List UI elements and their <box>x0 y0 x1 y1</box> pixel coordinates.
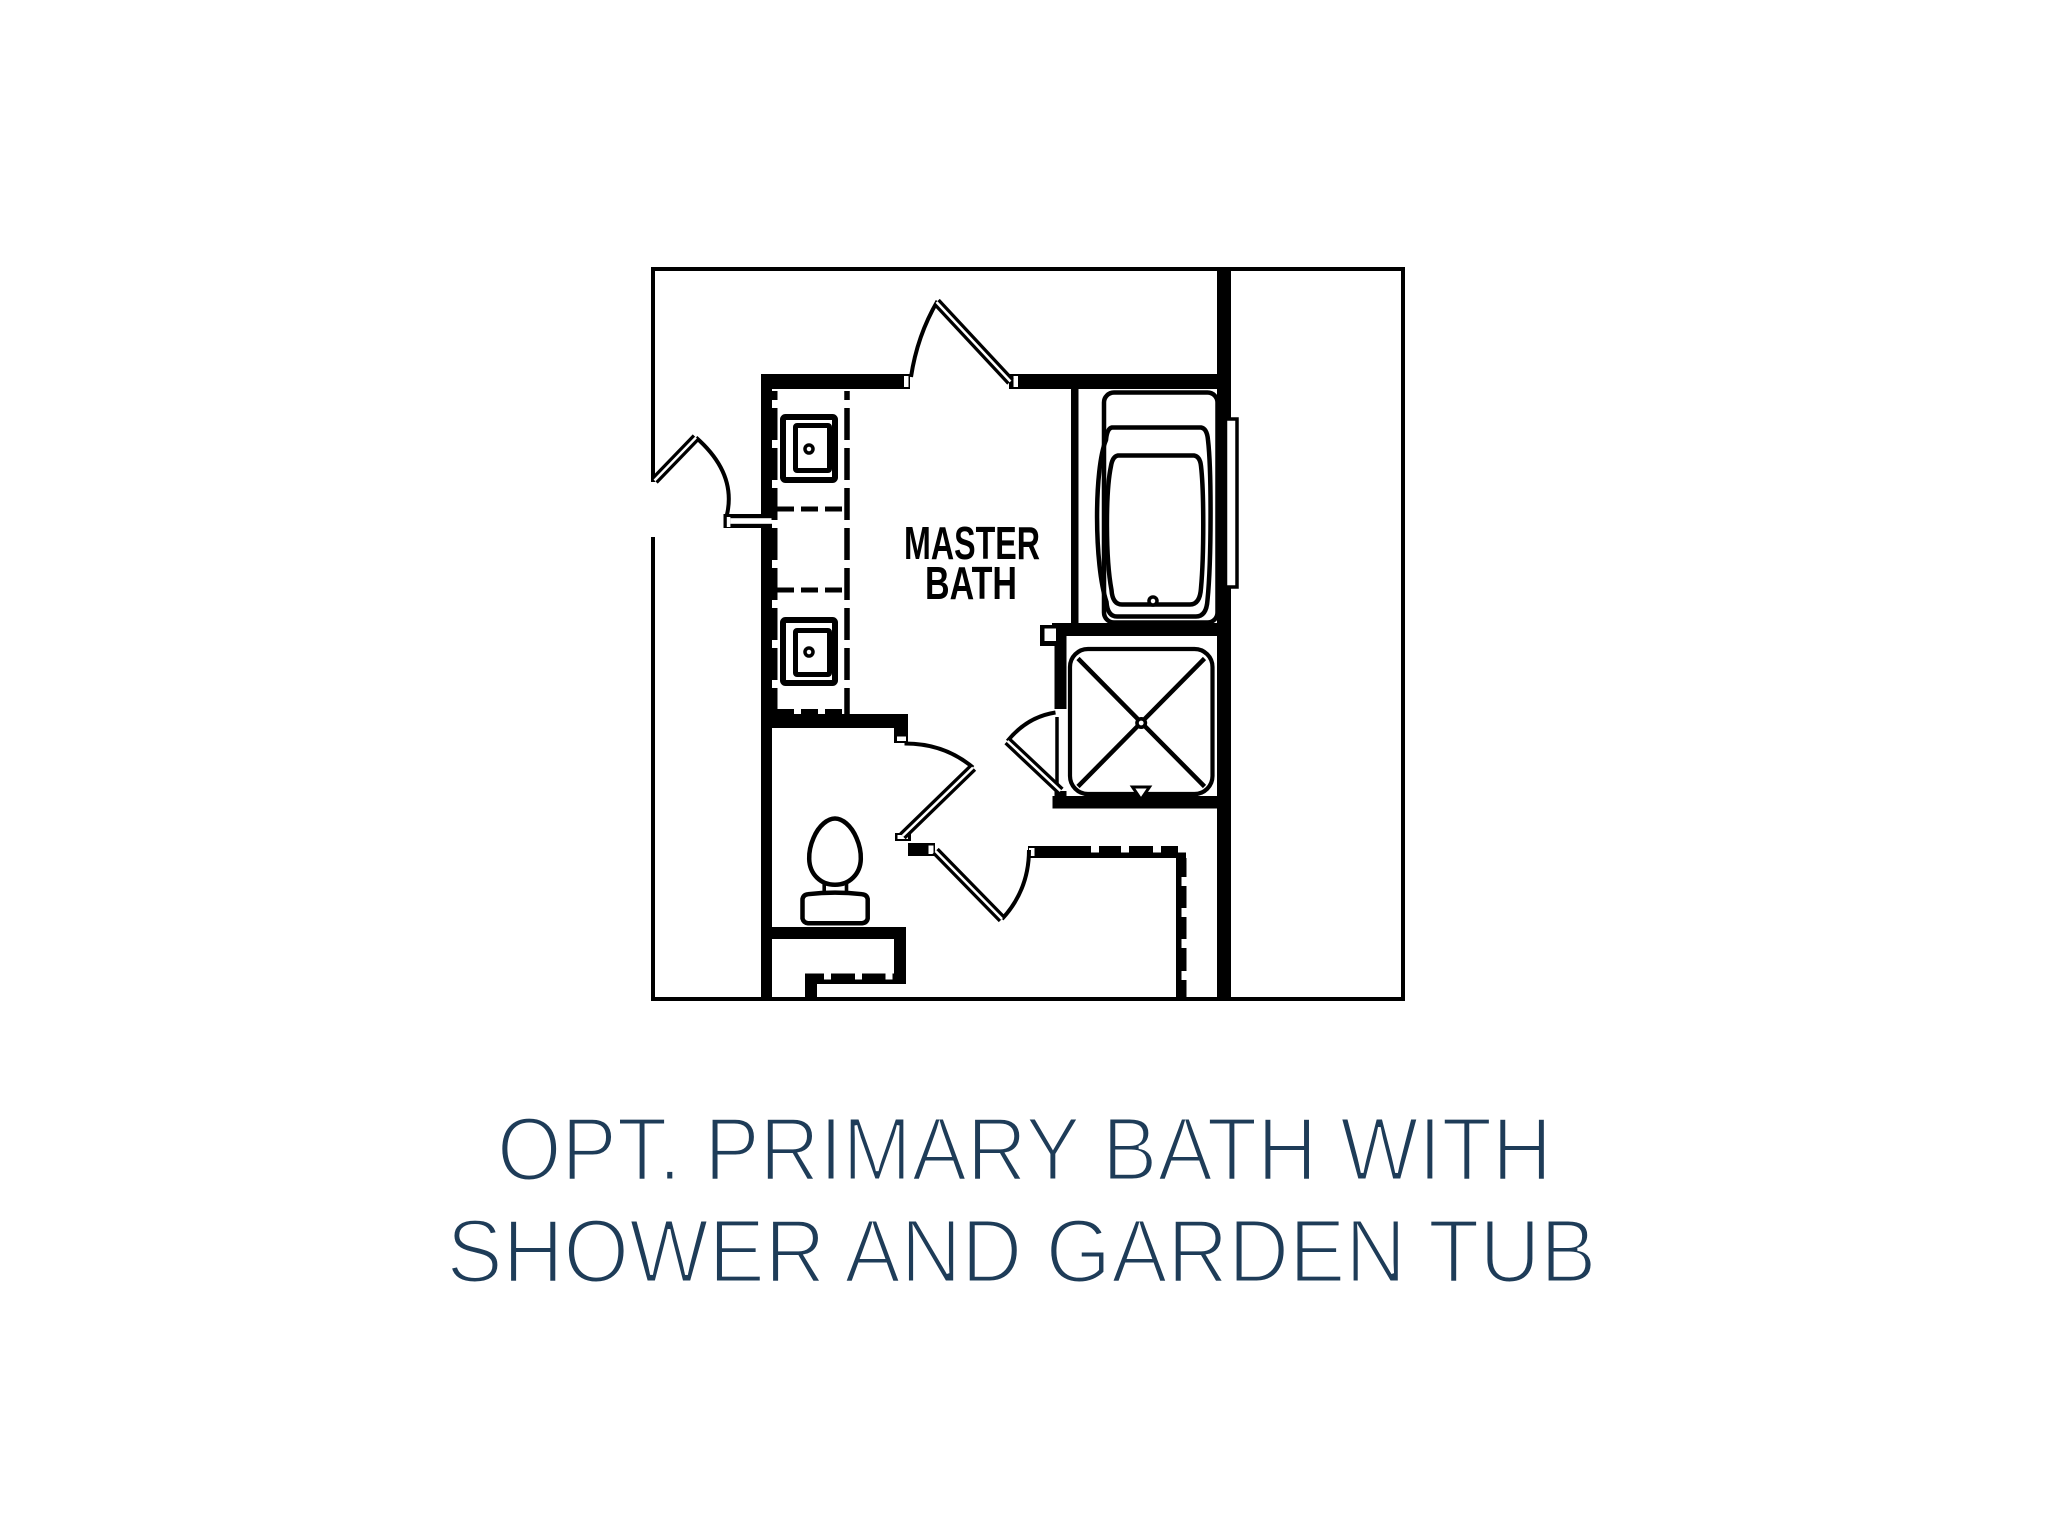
svg-text:BATH: BATH <box>925 557 1017 609</box>
svg-text:OPT. PRIMARY BATH WITH: OPT. PRIMARY BATH WITH <box>497 1100 1552 1200</box>
svg-text:SHOWER AND GARDEN TUB: SHOWER AND GARDEN TUB <box>447 1202 1597 1302</box>
